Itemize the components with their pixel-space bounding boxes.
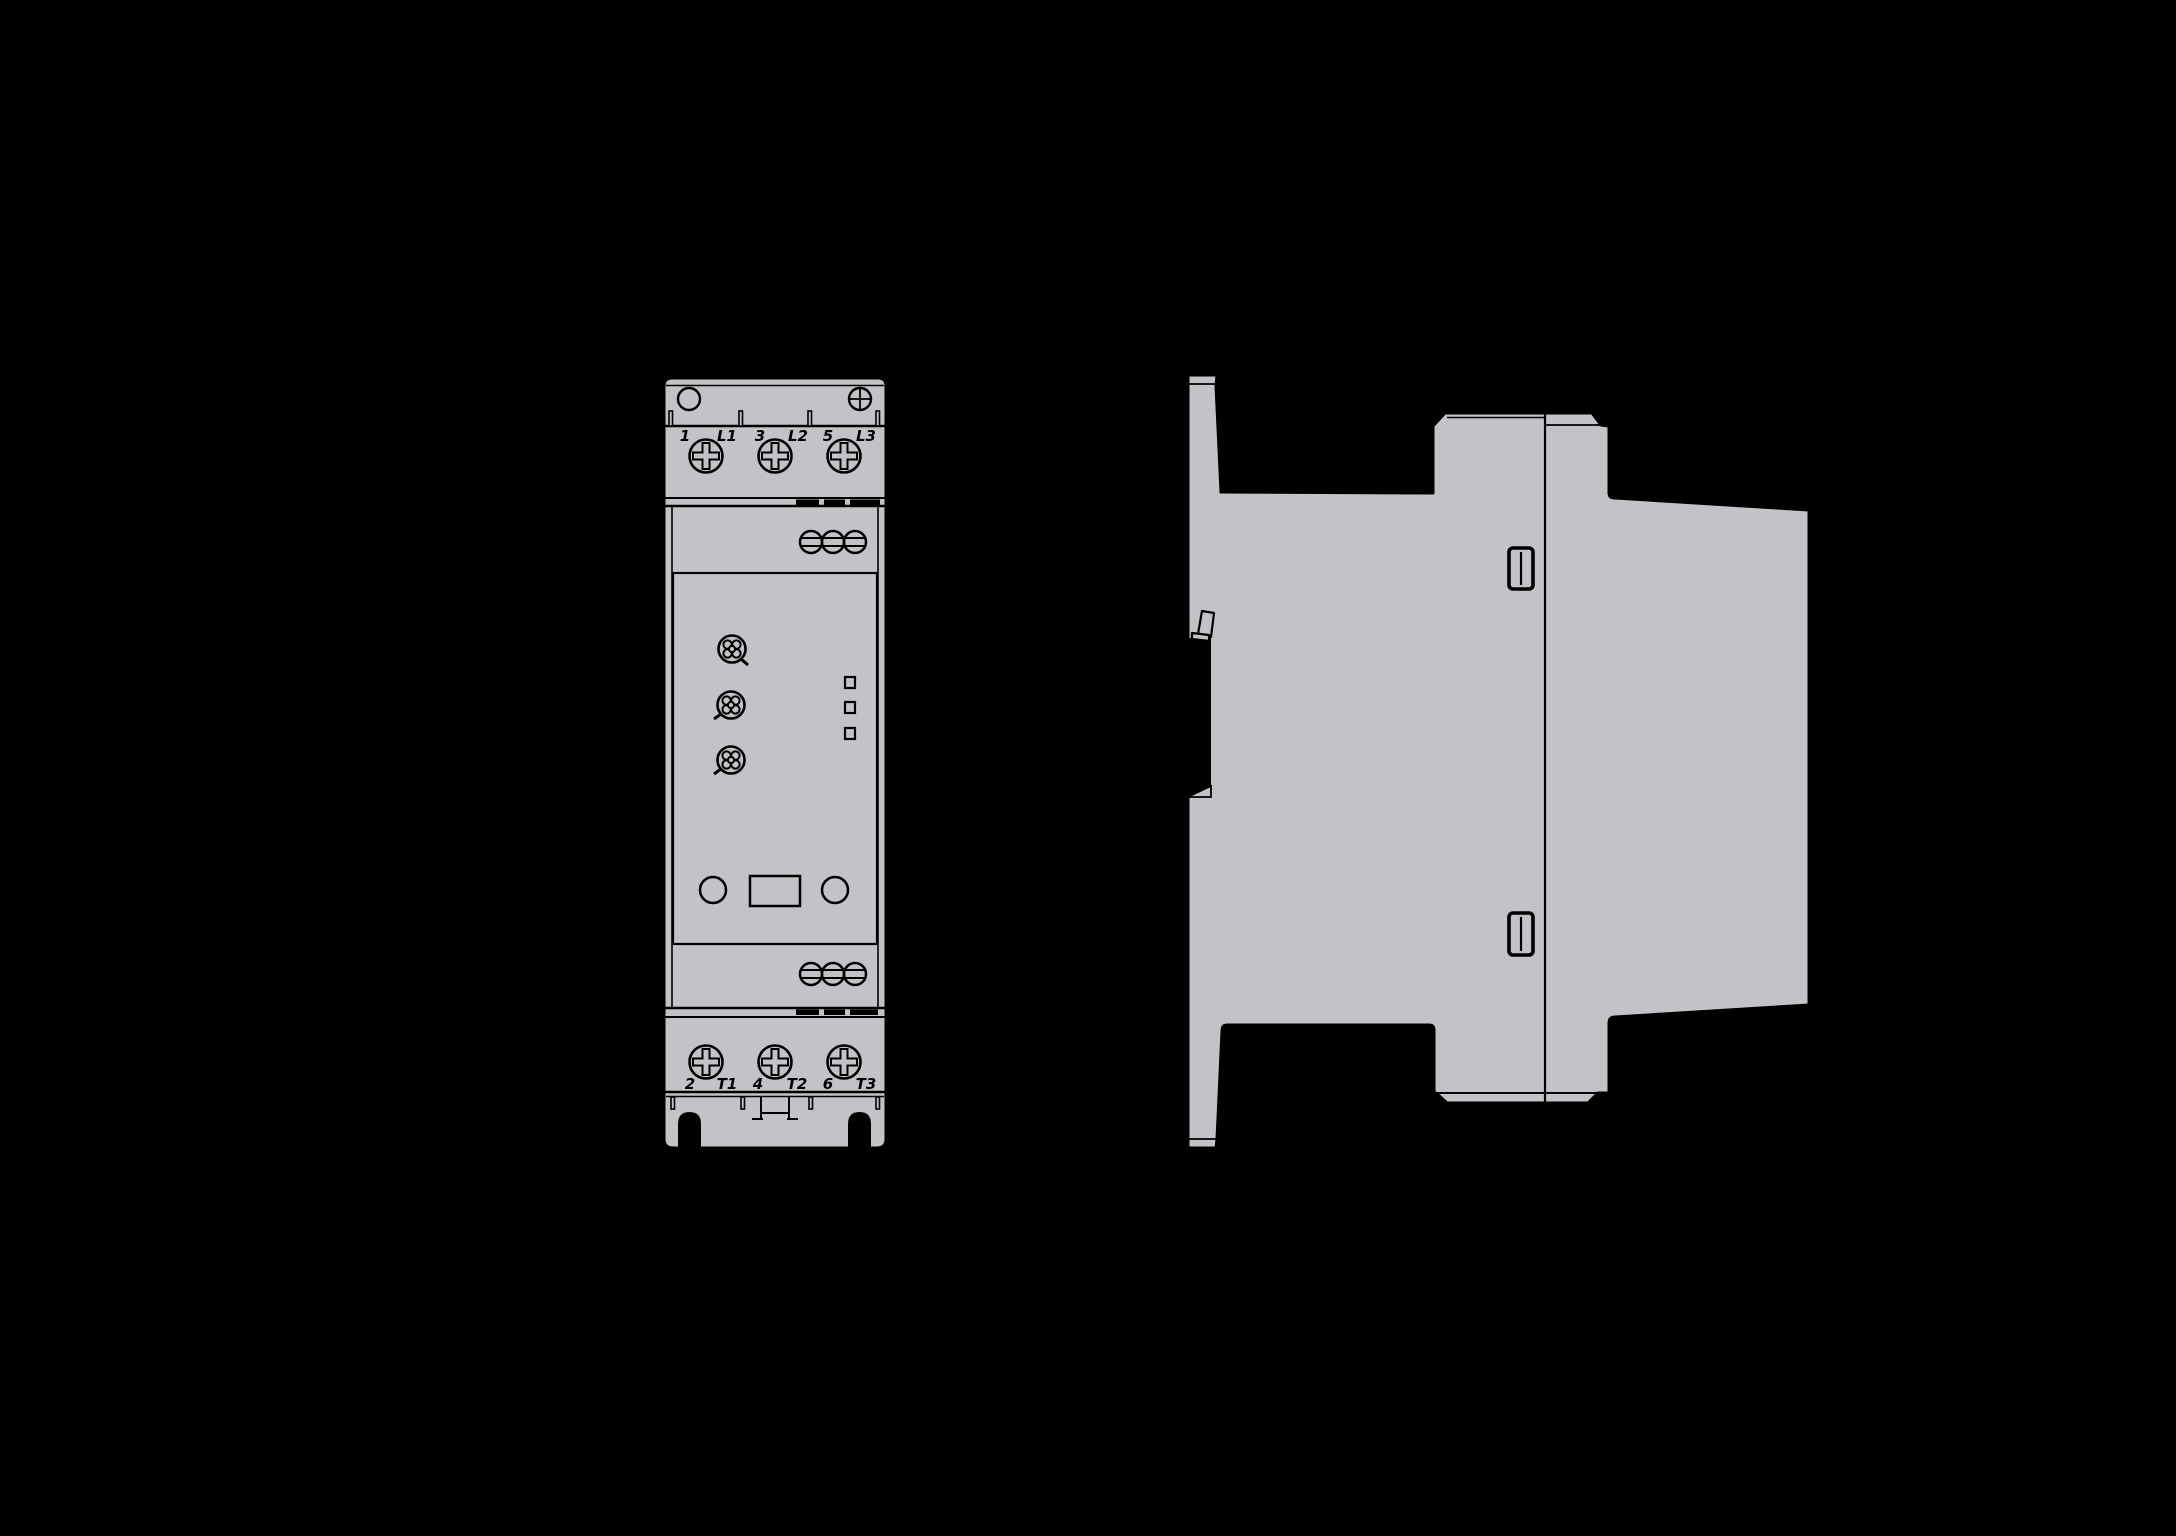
din-foot-slot [848, 1112, 871, 1147]
clamp-screw-icon [800, 963, 822, 985]
terminal-label: T1 [717, 1075, 738, 1093]
terminal-label: L3 [856, 427, 876, 445]
terminal-label: 2 [685, 1075, 695, 1093]
din-foot-slot [678, 1112, 701, 1147]
upper-clamp-screws [800, 531, 866, 553]
drawing-canvas: 1 L1 3 L2 5 L3 [0, 0, 2176, 1536]
terminal-label: 5 [823, 427, 833, 445]
clamp-screw-icon [822, 963, 844, 985]
side-view [1185, 375, 1809, 1148]
terminal-label: T3 [856, 1075, 877, 1093]
led-indicator [845, 677, 855, 688]
front-silhouette [664, 378, 886, 1148]
mounting-screw-icon [848, 387, 872, 411]
bottom-terminal-screws [690, 1046, 861, 1079]
clamp-screw-icon [844, 963, 866, 985]
clamp-screw-icon [800, 531, 822, 553]
din-rail-notch [1185, 638, 1211, 797]
technical-drawing: 1 L1 3 L2 5 L3 [0, 0, 2176, 1536]
divider-dark-bar [796, 1010, 878, 1016]
terminal-label: T2 [787, 1075, 808, 1093]
adjustment-knob-icon [719, 636, 749, 666]
lower-clamp-screws [800, 963, 866, 985]
terminal-label: 1 [680, 427, 690, 445]
led-indicators [845, 677, 855, 739]
led-indicator [845, 728, 855, 739]
terminal-label: L1 [717, 427, 737, 445]
front-view: 1 L1 3 L2 5 L3 [664, 378, 886, 1148]
led-indicator [845, 702, 855, 713]
terminal-label: 4 [752, 1075, 763, 1093]
top-terminal-screws [690, 440, 861, 473]
clamp-screw-icon [844, 531, 866, 553]
terminal-label: L2 [788, 427, 808, 445]
divider-dark-bar [796, 500, 880, 506]
side-silhouette [1188, 375, 1809, 1148]
terminal-label: 6 [823, 1075, 833, 1093]
clamp-screw-icon [822, 531, 844, 553]
